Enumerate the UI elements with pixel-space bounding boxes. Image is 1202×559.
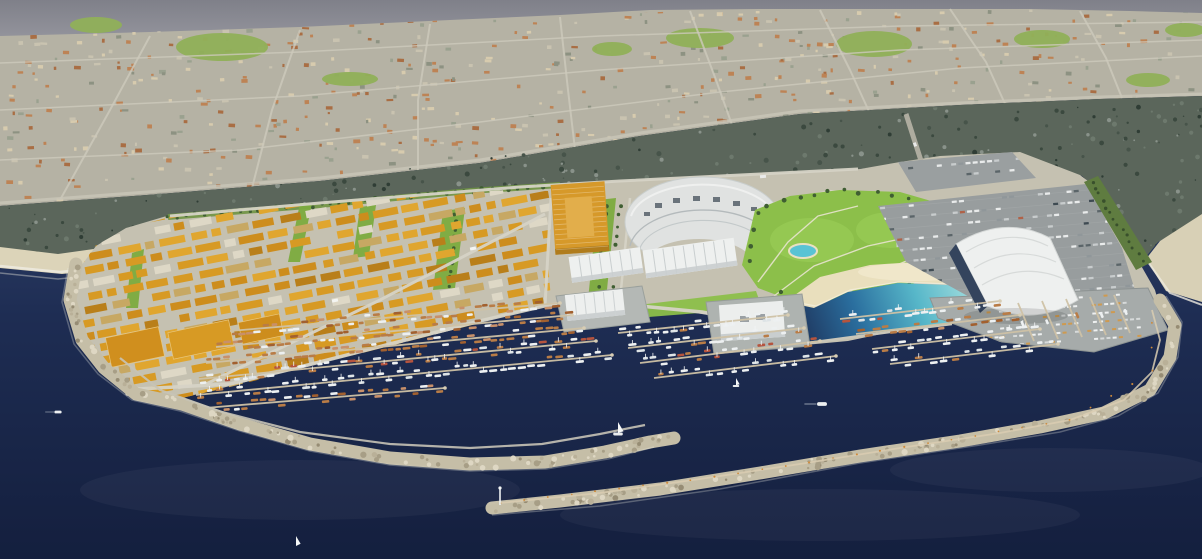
park-pond	[789, 244, 817, 258]
apartment-complex	[551, 181, 610, 255]
marina-masterplan-aerial-render	[0, 0, 1202, 559]
scene-canvas	[0, 0, 1202, 559]
